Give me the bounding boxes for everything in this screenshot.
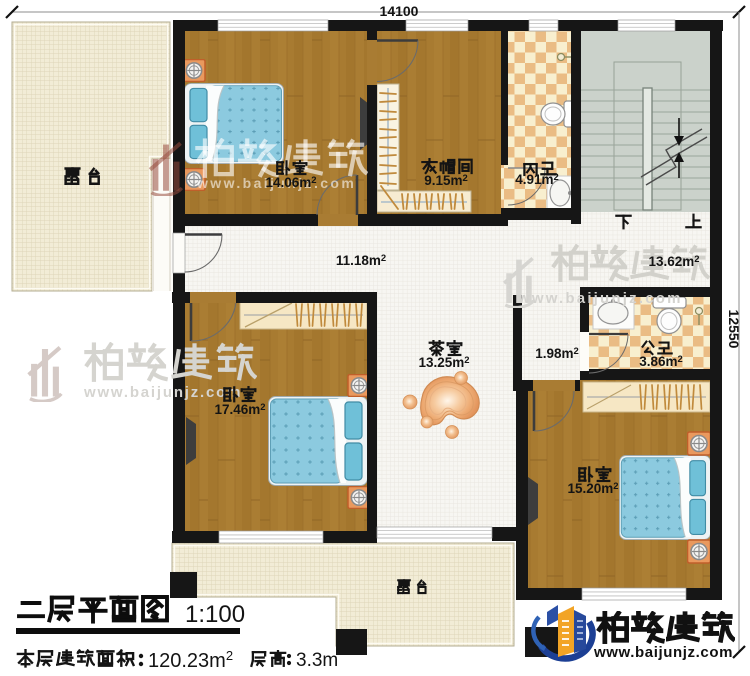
- svg-text:www.baijunjz.com: www.baijunjz.com: [83, 384, 242, 401]
- svg-text:15.20m2: 15.20m2: [567, 481, 618, 496]
- svg-text:14.06m2: 14.06m2: [265, 175, 316, 190]
- svg-text:1:100: 1:100: [185, 601, 245, 628]
- svg-text:12550: 12550: [726, 310, 742, 349]
- svg-text:14100: 14100: [380, 3, 419, 19]
- svg-text:11.18m2: 11.18m2: [336, 253, 386, 268]
- svg-text:www.baijunjz.com: www.baijunjz.com: [517, 290, 683, 307]
- svg-text:120.23m2: 120.23m2: [148, 648, 233, 672]
- svg-text:13.62m2: 13.62m2: [648, 254, 699, 269]
- svg-text:www.baijunjz.com: www.baijunjz.com: [593, 644, 733, 661]
- svg-text:17.46m2: 17.46m2: [214, 402, 265, 417]
- svg-text:1.98m2: 1.98m2: [535, 346, 579, 361]
- svg-text:3.3m: 3.3m: [296, 650, 338, 671]
- svg-text:9.15m2: 9.15m2: [424, 173, 468, 188]
- svg-text:4.91m2: 4.91m2: [515, 172, 559, 187]
- svg-text:3.86m2: 3.86m2: [639, 354, 683, 369]
- svg-text:13.25m2: 13.25m2: [418, 355, 469, 370]
